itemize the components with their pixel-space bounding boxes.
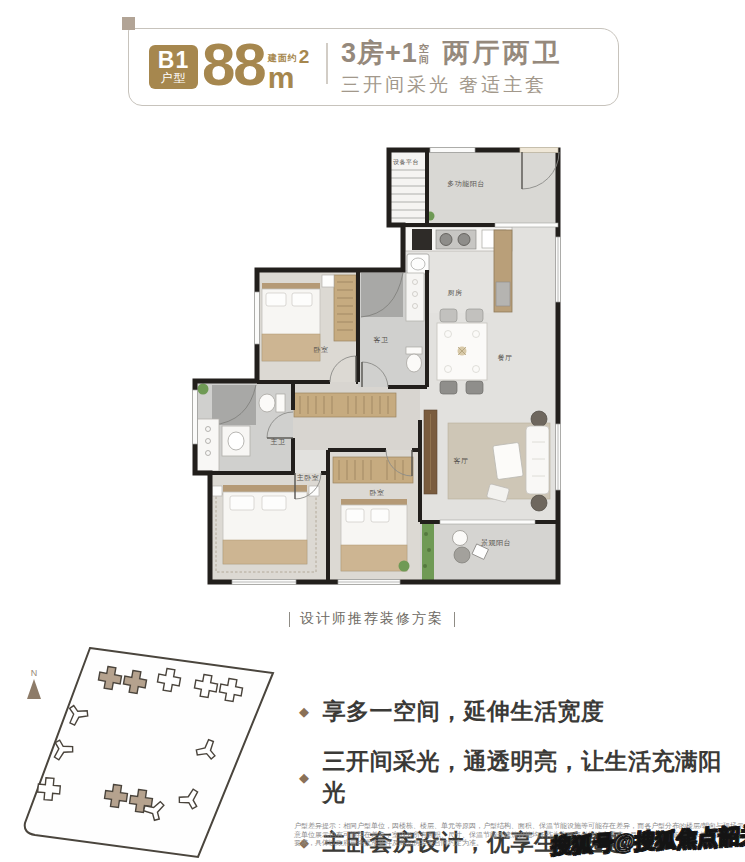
header-divider [326,43,328,84]
headline-stack-bottom: 间 [419,54,429,65]
caption-bar-right [454,612,455,627]
selling-point: ◆ 享多一空间，延伸生活宽度 [299,696,745,727]
caption-bar-left [289,612,290,627]
room-label-bedroom-2: 卧室 [370,489,385,496]
header-corner-square [122,17,135,30]
header-subtitle: 三开间采光 奢适主套 [341,72,563,98]
headline-rooms: 3房+1 [341,39,418,68]
room-label-equipment-platform: 设备平台 [393,158,419,166]
bed-2 [341,499,410,572]
headline-stack-top: 空 [419,43,429,54]
room-label-living: 客厅 [454,457,469,464]
plan-caption: 设计师推荐装修方案 [232,610,512,628]
room-label-multi-balcony: 多功能阳台 [447,180,485,188]
floorplan-svg: 设备平台 多功能阳台 厨房 餐厅 卧室 客卫 主卫 主卧室 卧室 客厅 景观阳台 [190,142,570,590]
area-figure: 88 建面约 m 2 [202,38,309,90]
selling-point-text: 享多一空间，延伸生活宽度 [323,696,605,727]
area-superscript: 2 [299,46,310,68]
plan-caption-text: 设计师推荐装修方案 [300,610,444,628]
compass-label: N [31,668,38,678]
diamond-bullet-icon: ◆ [299,705,310,718]
headline-halls: 两厅两卫 [443,39,563,68]
header-headline: 3房+1 空 间 两厅两卫 [341,39,563,68]
header-card: B1 户型 88 建面约 m 2 3房+1 空 间 两厅两卫 三开间采光 奢适主… [128,28,619,106]
multi-balcony-floor [427,150,558,225]
area-number: 88 [202,40,265,90]
view-balcony-floor [420,522,558,582]
area-unit-wrap: 建面约 m [268,52,298,90]
unit-type-label: 户型 [149,72,198,85]
room-label-guest-bath: 客卫 [374,336,389,343]
page: { "header": { "badge": { "code": "B1", "… [0,0,745,862]
unit-code: B1 [149,48,198,72]
diamond-bullet-icon: ◆ [299,771,310,784]
header-title: 3房+1 空 间 两厅两卫 三开间采光 奢适主套 [341,39,563,98]
room-label-master-bedroom: 主卧室 [297,473,320,481]
area-unit: m [268,65,298,90]
room-label-bedroom-top: 卧室 [314,346,329,353]
unit-badge: B1 户型 [149,45,198,89]
selling-point-text: 三开间采光，通透明亮，让生活充满阳光 [323,746,745,808]
room-label-dining: 餐厅 [498,354,513,361]
room-label-kitchen: 厨房 [448,289,463,296]
selling-point: ◆ 三开间采光，通透明亮，让生活充满阳光 [299,746,745,808]
siteplan-svg: N [15,645,305,860]
compass-icon [27,679,41,699]
headline-stack: 空 间 [419,43,429,65]
room-label-view-balcony: 景观阳台 [481,539,511,547]
room-label-master-bath: 主卫 [271,437,286,445]
